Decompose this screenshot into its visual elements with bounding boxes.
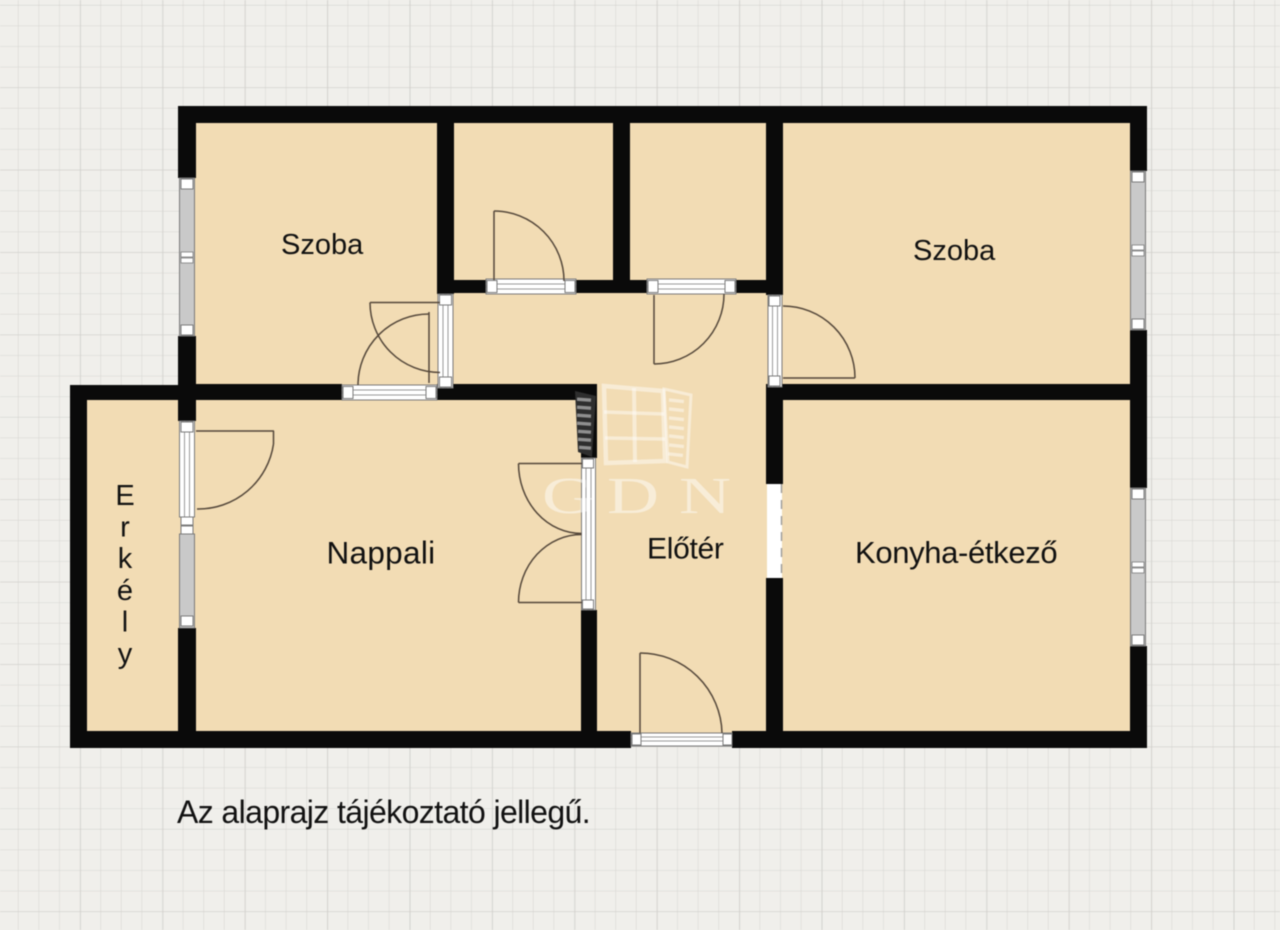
svg-text:E: E [115, 480, 134, 512]
svg-text:k: k [118, 543, 133, 575]
svg-text:Nappali: Nappali [327, 535, 436, 571]
svg-text:Az alaprajz tájékoztató jelleg: Az alaprajz tájékoztató jellegű. [177, 794, 590, 830]
svg-text:Szoba: Szoba [281, 229, 364, 261]
svg-text:Konyha-étkező: Konyha-étkező [855, 535, 1057, 570]
svg-text:N: N [679, 468, 731, 525]
svg-text:Szoba: Szoba [913, 235, 996, 267]
svg-text:r: r [120, 512, 130, 544]
svg-text:G: G [542, 468, 594, 525]
svg-text:y: y [118, 638, 133, 670]
svg-text:l: l [122, 606, 128, 638]
svg-text:Előtér: Előtér [647, 533, 724, 566]
svg-text:D: D [607, 468, 659, 525]
svg-text:é: é [117, 575, 133, 607]
